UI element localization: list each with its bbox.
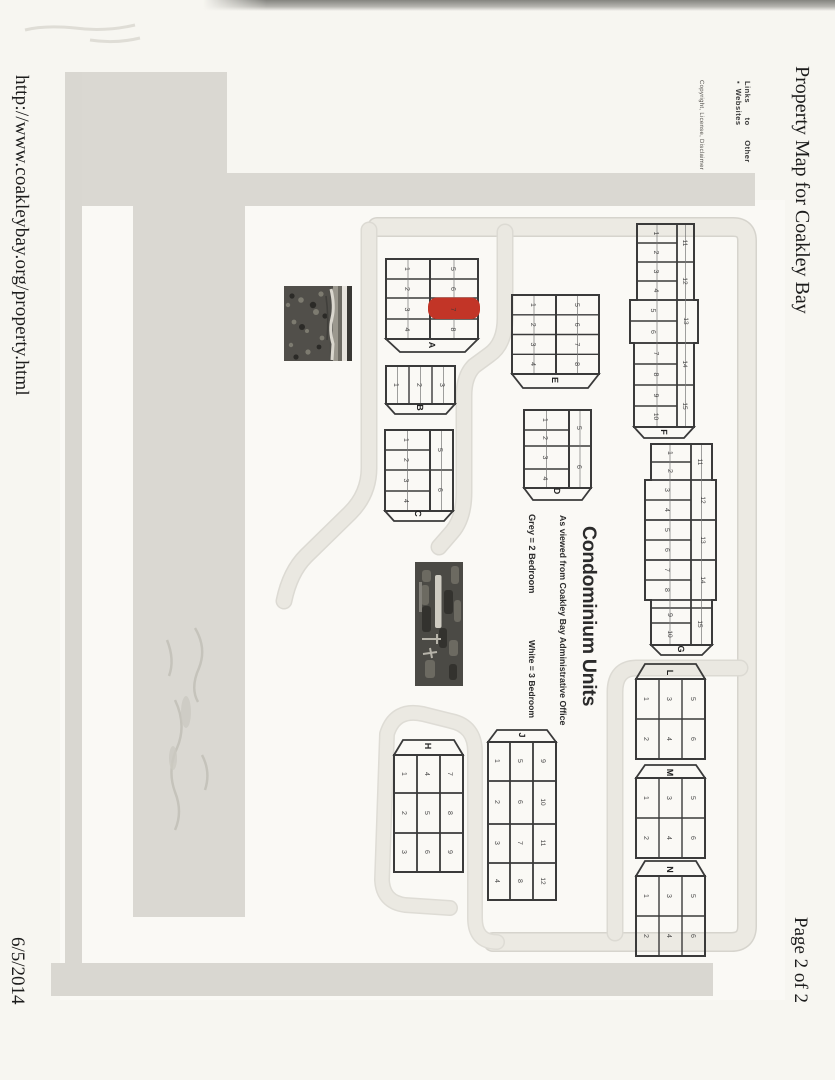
svg-text:2: 2 [666,469,673,473]
svg-text:3: 3 [663,488,670,492]
svg-text:7: 7 [652,352,659,356]
svg-text:2: 2 [642,934,649,938]
svg-text:12: 12 [699,496,706,504]
svg-text:2: 2 [541,436,548,440]
svg-text:C: C [413,510,423,517]
svg-text:5: 5 [449,267,456,271]
svg-text:J: J [517,732,527,737]
svg-text:A: A [427,342,437,349]
svg-text:6: 6 [516,800,523,804]
svg-text:1: 1 [642,796,649,800]
svg-text:3: 3 [541,456,548,460]
svg-text:D: D [552,488,562,495]
svg-text:15: 15 [681,402,688,410]
svg-text:5: 5 [423,811,430,815]
svg-text:4: 4 [665,836,672,840]
svg-text:N: N [665,866,675,873]
svg-text:3: 3 [400,850,407,854]
svg-text:8: 8 [446,811,453,815]
svg-text:5: 5 [689,894,696,898]
svg-text:8: 8 [573,362,580,366]
svg-text:3: 3 [438,383,445,387]
svg-text:12: 12 [539,877,546,885]
svg-text:3: 3 [665,894,672,898]
svg-text:5: 5 [689,796,696,800]
svg-text:1: 1 [541,418,548,422]
svg-text:1: 1 [642,894,649,898]
svg-text:6: 6 [575,465,582,469]
svg-text:F: F [659,429,669,435]
svg-text:8: 8 [516,879,523,883]
svg-text:H: H [423,743,433,750]
svg-text:2: 2 [529,323,536,327]
svg-text:1: 1 [402,438,409,442]
svg-text:8: 8 [663,588,670,592]
svg-text:13: 13 [699,536,706,544]
svg-text:G: G [676,645,686,652]
svg-text:4: 4 [663,508,670,512]
svg-text:15: 15 [696,620,703,628]
svg-text:3: 3 [529,342,536,346]
svg-text:6: 6 [689,836,696,840]
svg-text:14: 14 [699,576,706,584]
svg-text:13: 13 [682,317,689,325]
svg-text:2: 2 [642,737,649,741]
svg-text:6: 6 [649,330,656,334]
svg-text:6: 6 [573,323,580,327]
svg-text:As viewed from Coakley Bay Adm: As viewed from Coakley Bay Administrativ… [558,515,568,725]
svg-text:2: 2 [402,458,409,462]
svg-text:1: 1 [493,759,500,763]
svg-text:6: 6 [689,934,696,938]
svg-text:7: 7 [663,568,670,572]
svg-text:4: 4 [402,499,409,503]
svg-text:1: 1 [403,267,410,271]
svg-text:8: 8 [449,328,456,332]
svg-text:10: 10 [666,630,673,638]
svg-text:11: 11 [539,840,546,847]
svg-text:E: E [550,377,560,383]
svg-text:6: 6 [449,287,456,291]
svg-text:2: 2 [493,800,500,804]
svg-text:3: 3 [403,308,410,312]
svg-text:7: 7 [573,342,580,346]
svg-text:B: B [415,404,425,411]
svg-text:3: 3 [493,841,500,845]
svg-text:9: 9 [666,613,673,617]
svg-text:3: 3 [652,270,659,274]
svg-text:5: 5 [663,528,670,532]
svg-text:4: 4 [665,737,672,741]
svg-text:5: 5 [436,448,443,452]
svg-text:10: 10 [539,798,546,806]
svg-text:12: 12 [681,277,688,285]
svg-text:7: 7 [516,841,523,845]
svg-text:1: 1 [400,772,407,776]
svg-text:4: 4 [493,879,500,883]
svg-text:6: 6 [689,737,696,741]
svg-text:4: 4 [529,362,536,366]
svg-text:3: 3 [665,796,672,800]
svg-text:White = 3 Bedroom: White = 3 Bedroom [527,640,537,718]
svg-text:4: 4 [665,934,672,938]
svg-text:1: 1 [529,303,536,307]
svg-text:9: 9 [539,759,546,763]
svg-text:1: 1 [652,232,659,236]
svg-text:6: 6 [663,548,670,552]
svg-text:5: 5 [689,697,696,701]
svg-text:5: 5 [573,303,580,307]
svg-text:7: 7 [449,308,456,312]
svg-text:9: 9 [652,394,659,398]
svg-text:2: 2 [642,836,649,840]
svg-text:6: 6 [436,488,443,492]
svg-text:4: 4 [423,772,430,776]
svg-text:2: 2 [652,251,659,255]
svg-text:3: 3 [402,479,409,483]
svg-text:8: 8 [652,373,659,377]
svg-text:Condominium Units: Condominium Units [578,526,600,707]
svg-text:3: 3 [665,697,672,701]
svg-text:2: 2 [400,811,407,815]
svg-text:1: 1 [666,451,673,455]
svg-text:4: 4 [652,289,659,293]
svg-text:9: 9 [446,850,453,854]
svg-text:4: 4 [541,477,548,481]
svg-text:11: 11 [681,240,688,247]
svg-text:11: 11 [696,459,703,466]
svg-text:14: 14 [681,360,688,368]
svg-text:M: M [665,769,675,777]
svg-text:1: 1 [392,383,399,387]
svg-text:7: 7 [446,772,453,776]
svg-text:5: 5 [575,426,582,430]
svg-text:10: 10 [652,413,659,421]
svg-text:5: 5 [516,759,523,763]
svg-text:4: 4 [403,328,410,332]
svg-text:2: 2 [415,383,422,387]
svg-text:L: L [665,670,675,676]
svg-text:2: 2 [403,287,410,291]
svg-text:6: 6 [423,850,430,854]
svg-text:1: 1 [642,697,649,701]
svg-text:5: 5 [649,309,656,313]
svg-text:Grey = 2 Bedroom: Grey = 2 Bedroom [527,514,537,593]
